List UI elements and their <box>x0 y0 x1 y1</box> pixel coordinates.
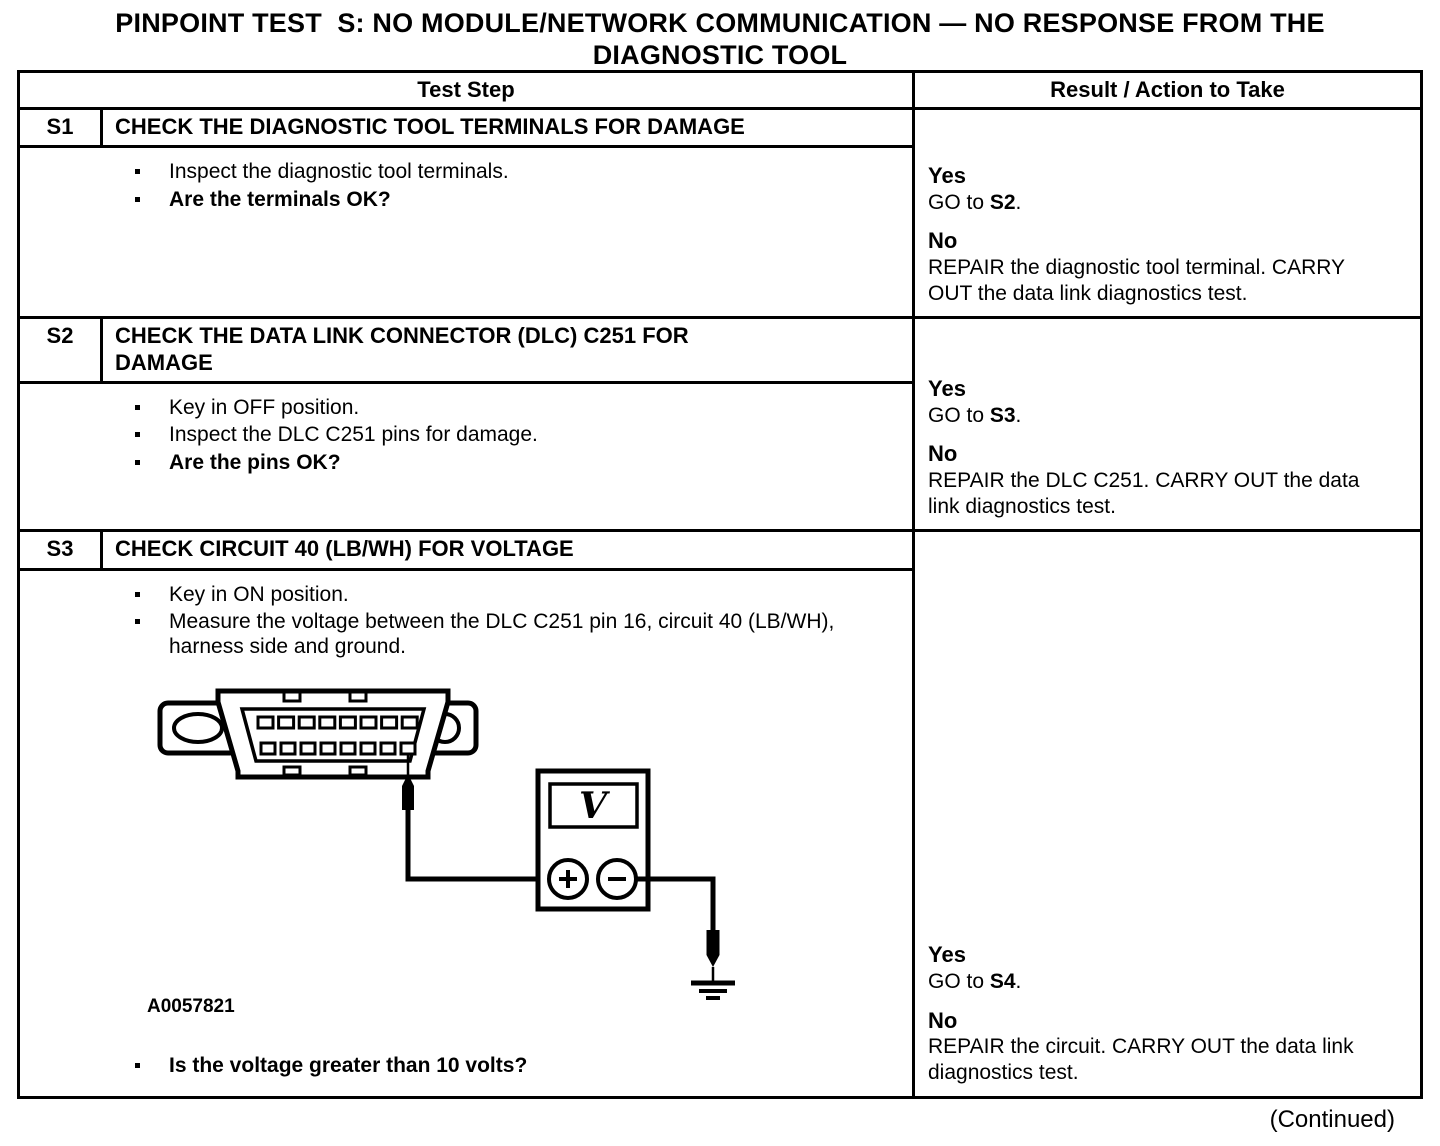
step-s2-body: Key in OFF position. Inspect the DLC C25… <box>20 384 912 529</box>
bullet-icon <box>135 197 140 202</box>
bullet-icon <box>135 460 140 465</box>
bullet-text: Inspect the DLC C251 pins for damage. <box>169 422 902 447</box>
bullet-icon <box>135 1063 140 1068</box>
step-title: CHECK THE DATA LINK CONNECTOR (DLC) C251… <box>103 319 783 381</box>
step-s1-bullet-list: Inspect the diagnostic tool terminals. A… <box>20 158 902 212</box>
bullet-icon <box>135 169 140 174</box>
mounting-slot-left <box>174 714 222 742</box>
table-header-row: Test Step Result / Action to Take <box>20 73 1420 110</box>
no-label: No <box>928 228 1384 255</box>
no-action: REPAIR the diagnostic tool terminal. CAR… <box>928 255 1380 306</box>
document-page: PINPOINT TEST S: NO MODULE/NETWORK COMMU… <box>0 0 1440 1146</box>
step-s2-test-step-cell: S2 CHECK THE DATA LINK CONNECTOR (DLC) C… <box>20 319 915 529</box>
yes-label: Yes <box>928 376 1384 403</box>
bullet-text: Is the voltage greater than 10 volts? <box>169 1053 902 1078</box>
figure-id-label: A0057821 <box>147 996 235 1019</box>
step-s3-test-step-cell: S3 CHECK CIRCUIT 40 (LB/WH) FOR VOLTAGE … <box>20 532 915 1095</box>
step-s1-test-step-cell: S1 CHECK THE DIAGNOSTIC TOOL TERMINALS F… <box>20 110 915 316</box>
list-item: Are the pins OK? <box>20 449 902 476</box>
no-action: REPAIR the circuit. CARRY OUT the data l… <box>928 1034 1380 1085</box>
bullet-text: Key in OFF position. <box>169 395 902 420</box>
no-label: No <box>928 1008 1384 1035</box>
yes-label: Yes <box>928 942 1384 969</box>
yes-action: GO to S3. <box>928 403 1380 429</box>
bullet-icon <box>135 432 140 437</box>
voltmeter-icon: V <box>538 771 648 909</box>
table-row: S2 CHECK THE DATA LINK CONNECTOR (DLC) C… <box>20 316 1420 529</box>
ground-probe-icon <box>707 930 720 967</box>
step-s3-question-list: Is the voltage greater than 10 volts? <box>20 1052 902 1079</box>
yes-action: GO to S4. <box>928 969 1380 995</box>
list-item: Are the terminals OK? <box>20 186 902 213</box>
bullet-icon <box>135 619 140 624</box>
column-header-result: Result / Action to Take <box>915 73 1420 107</box>
list-item: Key in ON position. <box>20 581 902 608</box>
bullet-text: Inspect the diagnostic tool terminals. <box>169 159 902 184</box>
step-s2-bullet-list: Key in OFF position. Inspect the DLC C25… <box>20 394 902 476</box>
bullet-icon <box>135 592 140 597</box>
step-s2-result-cell: Yes GO to S3. No REPAIR the DLC C251. CA… <box>915 319 1420 529</box>
step-s3-title-row: S3 CHECK CIRCUIT 40 (LB/WH) FOR VOLTAGE <box>20 532 912 570</box>
go-target: S4 <box>990 970 1016 993</box>
go-suffix: . <box>1016 191 1022 214</box>
go-suffix: . <box>1016 970 1022 993</box>
step-title: CHECK THE DIAGNOSTIC TOOL TERMINALS FOR … <box>103 110 912 145</box>
go-prefix: GO to <box>928 404 990 427</box>
list-item: Inspect the diagnostic tool terminals. <box>20 158 902 185</box>
list-item: Key in OFF position. <box>20 394 902 421</box>
dlc-voltmeter-diagram: V <box>140 674 780 1026</box>
bullet-text: Key in ON position. <box>169 582 902 607</box>
table-row: S3 CHECK CIRCUIT 40 (LB/WH) FOR VOLTAGE … <box>20 529 1420 1095</box>
go-prefix: GO to <box>928 970 990 993</box>
step-id: S2 <box>20 319 103 381</box>
step-s3-bullet-list: Key in ON position. Measure the voltage … <box>20 581 902 661</box>
yes-label: Yes <box>928 163 1384 190</box>
column-header-test-step: Test Step <box>20 73 915 107</box>
go-prefix: GO to <box>928 191 990 214</box>
step-s1-title-row: S1 CHECK THE DIAGNOSTIC TOOL TERMINALS F… <box>20 110 912 148</box>
step-id: S1 <box>20 110 103 145</box>
page-title-line1: PINPOINT TEST S: NO MODULE/NETWORK COMMU… <box>0 8 1440 40</box>
connector-housing <box>218 691 448 777</box>
step-s1-body: Inspect the diagnostic tool terminals. A… <box>20 148 912 316</box>
go-target: S2 <box>990 191 1016 214</box>
page-title-line2: DIAGNOSTIC TOOL <box>0 40 1440 72</box>
ground-symbol-icon <box>691 983 735 998</box>
list-item: Is the voltage greater than 10 volts? <box>20 1052 902 1079</box>
step-s3-body: Key in ON position. Measure the voltage … <box>20 571 912 1096</box>
positive-lead-wire <box>408 810 549 879</box>
pinpoint-test-table: Test Step Result / Action to Take S1 CHE… <box>17 70 1423 1099</box>
bullet-text: Measure the voltage between the DLC C251… <box>169 609 902 659</box>
yes-action: GO to S2. <box>928 190 1380 216</box>
dlc-connector-icon <box>160 691 476 777</box>
no-label: No <box>928 441 1384 468</box>
step-id: S3 <box>20 532 103 567</box>
page-title: PINPOINT TEST S: NO MODULE/NETWORK COMMU… <box>0 8 1440 72</box>
go-target: S3 <box>990 404 1016 427</box>
step-s1-result-cell: Yes GO to S2. No REPAIR the diagnostic t… <box>915 110 1420 316</box>
go-suffix: . <box>1016 404 1022 427</box>
list-item: Measure the voltage between the DLC C251… <box>20 608 902 660</box>
step-s3-result-cell: Yes GO to S4. No REPAIR the circuit. CAR… <box>915 532 1420 1095</box>
step-s2-title-row: S2 CHECK THE DATA LINK CONNECTOR (DLC) C… <box>20 319 912 384</box>
bullet-text: Are the terminals OK? <box>169 187 902 212</box>
step-title: CHECK CIRCUIT 40 (LB/WH) FOR VOLTAGE <box>103 532 912 567</box>
bullet-text: Are the pins OK? <box>169 450 902 475</box>
continued-label: (Continued) <box>17 1100 1423 1134</box>
wiring-diagram-figure: V <box>140 674 780 1026</box>
voltmeter-display-label: V <box>579 785 610 827</box>
table-row: S1 CHECK THE DIAGNOSTIC TOOL TERMINALS F… <box>20 110 1420 316</box>
no-action: REPAIR the DLC C251. CARRY OUT the data … <box>928 468 1380 519</box>
list-item: Inspect the DLC C251 pins for damage. <box>20 421 902 448</box>
bullet-icon <box>135 405 140 410</box>
